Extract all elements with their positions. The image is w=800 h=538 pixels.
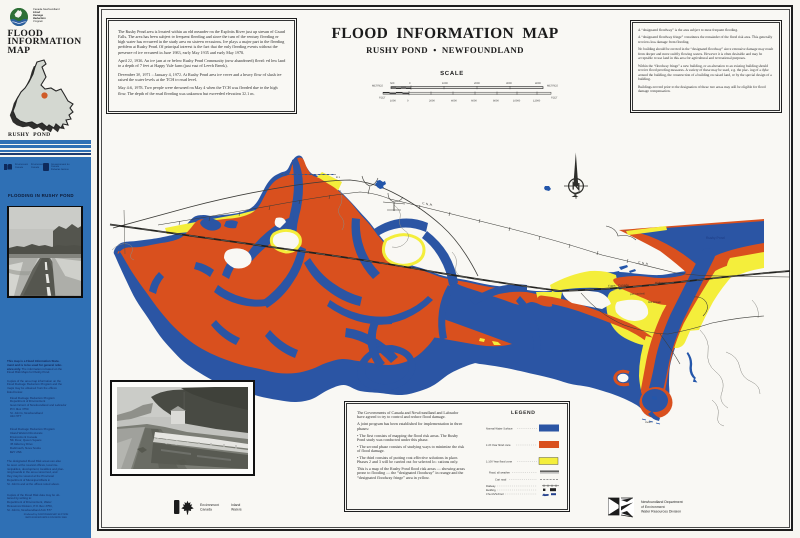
svg-text:Newfoundland Department: Newfoundland Department	[641, 500, 683, 504]
svg-text:Water Resources Division: Water Resources Division	[641, 510, 681, 514]
svg-text:Building: Building	[486, 489, 496, 492]
svg-text:0: 0	[409, 82, 411, 85]
svg-text:Waters: Waters	[231, 508, 242, 512]
svg-text:500: 500	[390, 82, 395, 85]
svg-text:4000: 4000	[535, 82, 541, 85]
svg-text:Highway: Highway	[655, 280, 667, 285]
svg-text:B 1: B 1	[336, 176, 340, 179]
svg-text:3000: 3000	[506, 82, 512, 85]
svg-text:Rushy Pond: Rushy Pond	[706, 236, 725, 240]
svg-text:Inland: Inland	[231, 503, 240, 507]
svg-text:Normal Water Surface: Normal Water Surface	[486, 428, 513, 431]
svg-text:C. N. R.: C. N. R.	[638, 260, 649, 266]
svg-text:Cart road: Cart road	[495, 479, 507, 482]
svg-text:Canada: Canada	[200, 508, 212, 512]
svg-text:2000: 2000	[474, 82, 480, 85]
svg-text:0: 0	[407, 100, 409, 103]
svg-text:1:100 Year flood zone: 1:100 Year flood zone	[486, 461, 513, 464]
svg-text:1000: 1000	[390, 100, 396, 103]
svg-text:1:20 Year flood zone: 1:20 Year flood zone	[486, 444, 511, 447]
svg-text:Road, all weather: Road, all weather	[489, 472, 510, 475]
svg-text:Railway: Railway	[486, 485, 496, 488]
svg-text:6000: 6000	[471, 100, 477, 103]
svg-text:Church/School: Church/School	[486, 493, 504, 496]
svg-text:Outlet: Outlet	[645, 421, 652, 424]
svg-text:2000: 2000	[429, 100, 435, 103]
svg-text:METRES: METRES	[372, 85, 383, 88]
svg-text:4000: 4000	[451, 100, 457, 103]
svg-text:8000: 8000	[493, 100, 499, 103]
svg-text:METRES: METRES	[547, 85, 558, 88]
svg-text:FEET: FEET	[379, 97, 386, 100]
svg-text:Mill Stream: Mill Stream	[648, 301, 661, 304]
svg-text:FEET: FEET	[551, 97, 558, 100]
svg-text:Environment: Environment	[200, 503, 219, 507]
svg-text:C. N. R.: C. N. R.	[422, 201, 433, 207]
svg-text:12000: 12000	[533, 100, 541, 103]
svg-text:10000: 10000	[513, 100, 521, 103]
svg-text:1000: 1000	[442, 82, 448, 85]
svg-text:of Environment: of Environment	[641, 505, 665, 509]
